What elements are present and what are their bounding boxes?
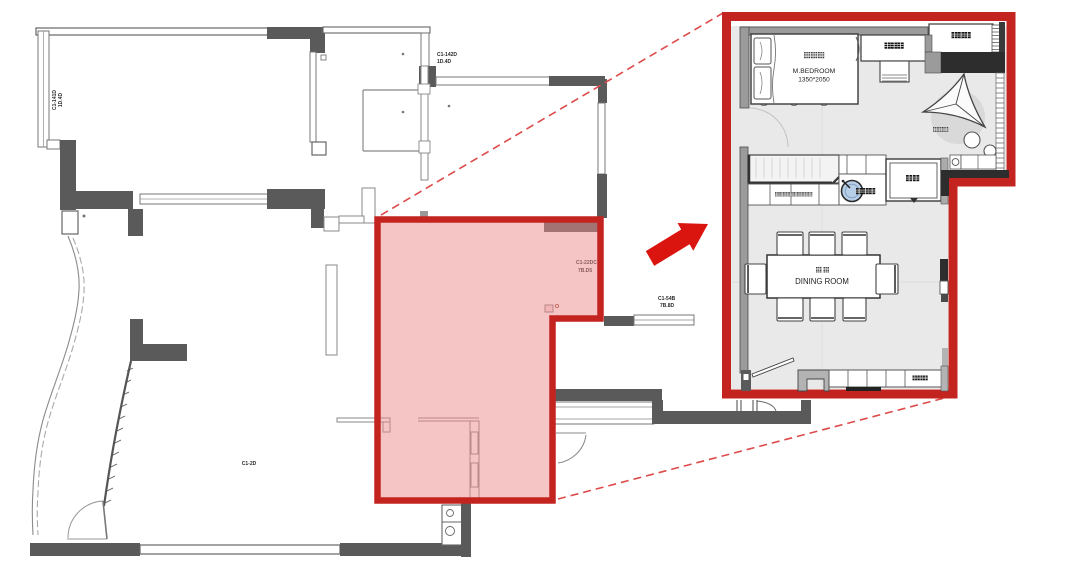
svg-text:C1-2D: C1-2D [242,461,257,467]
svg-text:1D.4D: 1D.4D [437,59,452,65]
svg-text:C1-142D: C1-142D [437,52,457,58]
svg-text:1350*2050: 1350*2050 [798,77,830,84]
svg-text:1D.4D: 1D.4D [58,93,64,108]
svg-text:DINING ROOM: DINING ROOM [795,277,849,286]
svg-text:M.BEDROOM: M.BEDROOM [793,68,836,75]
svg-text:C1-54B: C1-54B [658,296,676,302]
svg-text:7B.8D: 7B.8D [660,303,675,309]
